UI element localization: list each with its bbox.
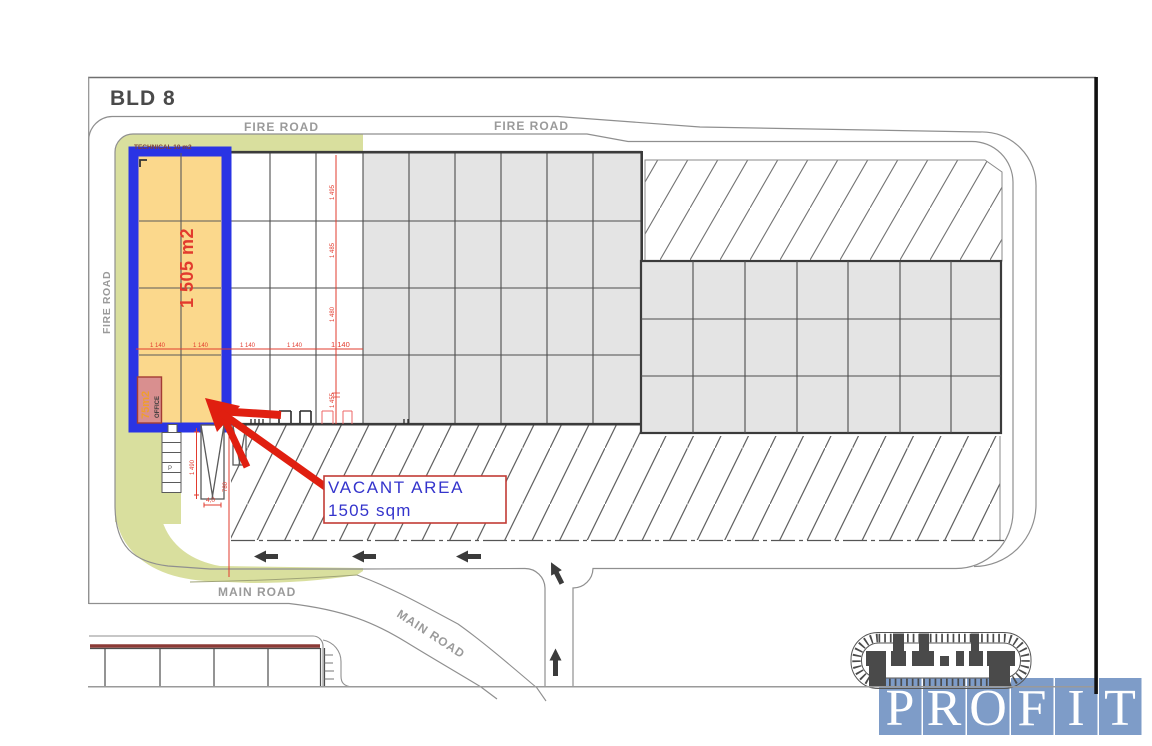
svg-text:1 140: 1 140 <box>331 340 350 349</box>
svg-text:1 485: 1 485 <box>330 242 336 258</box>
svg-text:1 490: 1 490 <box>190 459 196 475</box>
svg-text:T: T <box>1104 680 1136 737</box>
svg-text:FIRE ROAD: FIRE ROAD <box>101 271 113 334</box>
svg-text:780: 780 <box>223 481 229 492</box>
svg-text:1505 sqm: 1505 sqm <box>328 501 411 520</box>
svg-text:1 140: 1 140 <box>193 343 209 349</box>
svg-text:1 495: 1 495 <box>330 184 336 200</box>
svg-text:1 505 m2: 1 505 m2 <box>177 228 197 308</box>
svg-text:FIRE ROAD: FIRE ROAD <box>244 120 319 134</box>
svg-text:1 455: 1 455 <box>330 392 336 408</box>
svg-text:TECHNICAL 10 m2: TECHNICAL 10 m2 <box>134 144 192 151</box>
svg-text:4,0: 4,0 <box>206 497 215 504</box>
svg-text:1 140: 1 140 <box>240 343 256 349</box>
svg-text:I: I <box>1067 680 1084 737</box>
svg-text:VACANT AREA: VACANT AREA <box>328 478 464 497</box>
svg-text:FIRE ROAD: FIRE ROAD <box>494 119 569 133</box>
svg-text:F: F <box>1018 680 1047 737</box>
svg-text:MAIN ROAD: MAIN ROAD <box>218 585 296 599</box>
svg-text:BLD 8: BLD 8 <box>110 87 176 110</box>
svg-text:75m2: 75m2 <box>140 391 152 419</box>
svg-text:1 480: 1 480 <box>330 306 336 322</box>
svg-text:P: P <box>168 466 172 472</box>
svg-text:OFFICE: OFFICE <box>155 396 161 418</box>
svg-text:1 140: 1 140 <box>287 343 303 349</box>
svg-text:1 140: 1 140 <box>150 343 166 349</box>
